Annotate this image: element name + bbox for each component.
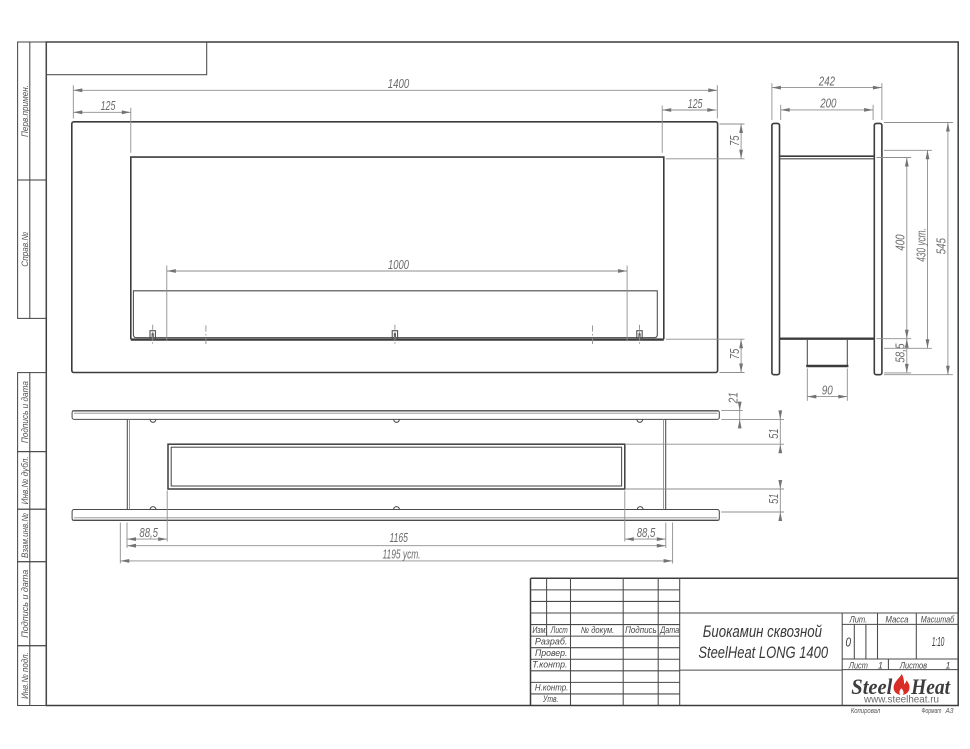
- svg-text:1:10: 1:10: [932, 635, 945, 649]
- svg-text:www.steelheat.ru: www.steelheat.ru: [863, 695, 939, 706]
- svg-text:242: 242: [818, 73, 835, 88]
- svg-text:SteelHeat LONG 1400: SteelHeat LONG 1400: [698, 644, 828, 662]
- svg-text:А3: А3: [945, 708, 954, 715]
- svg-text:Подпись и дата: Подпись и дата: [20, 381, 30, 443]
- svg-text:21: 21: [726, 392, 741, 404]
- svg-text:Изм.: Изм.: [532, 625, 547, 635]
- svg-text:430 уст.: 430 уст.: [913, 228, 928, 262]
- svg-text:Масштаб: Масштаб: [921, 615, 955, 625]
- svg-text:400: 400: [893, 234, 908, 251]
- svg-text:125: 125: [688, 96, 703, 111]
- svg-text:Взам.инв.№: Взам.инв.№: [20, 513, 30, 558]
- svg-text:75: 75: [727, 348, 742, 359]
- svg-text:Подпись и дата: Подпись и дата: [20, 570, 30, 638]
- svg-text:1400: 1400: [388, 76, 410, 91]
- svg-text:Дата: Дата: [659, 625, 679, 635]
- svg-text:Биокамин сквозной: Биокамин сквозной: [703, 623, 822, 641]
- svg-text:Инв.№ подл.: Инв.№ подл.: [20, 652, 30, 699]
- svg-text:Т.контр.: Т.контр.: [532, 659, 567, 669]
- svg-text:200: 200: [819, 96, 836, 111]
- svg-text:Лист: Лист: [848, 660, 868, 670]
- svg-text:Н.контр.: Н.контр.: [535, 683, 568, 693]
- svg-text:Лит.: Лит.: [849, 615, 868, 625]
- svg-text:125: 125: [101, 98, 116, 113]
- svg-text:88,5: 88,5: [139, 525, 158, 540]
- svg-text:51: 51: [766, 494, 781, 504]
- svg-text:58,5: 58,5: [893, 343, 908, 363]
- svg-text:Перв.примен.: Перв.примен.: [20, 85, 30, 137]
- svg-text:Лист: Лист: [550, 625, 568, 635]
- svg-text:Инв.№ дубл.: Инв.№ дубл.: [20, 456, 30, 504]
- svg-text:Утв.: Утв.: [542, 694, 558, 704]
- svg-text:0: 0: [845, 636, 851, 650]
- svg-text:Формат: Формат: [922, 708, 942, 715]
- svg-text:51: 51: [766, 428, 781, 438]
- svg-text:Разраб.: Разраб.: [535, 636, 568, 646]
- svg-text:88,5: 88,5: [637, 525, 656, 540]
- svg-text:Масса: Масса: [885, 615, 908, 625]
- svg-text:Листов: Листов: [899, 660, 927, 670]
- svg-text:Копировал: Копировал: [851, 708, 881, 715]
- svg-text:1: 1: [878, 660, 883, 670]
- svg-text:1000: 1000: [388, 257, 409, 272]
- svg-text:75: 75: [727, 135, 742, 146]
- svg-text:90: 90: [822, 382, 833, 397]
- svg-text:1: 1: [946, 660, 951, 670]
- svg-text:1195 уст.: 1195 уст.: [383, 547, 421, 562]
- svg-text:Справ.№: Справ.№: [20, 231, 30, 266]
- svg-text:545: 545: [934, 238, 949, 255]
- svg-text:Подпись: Подпись: [625, 625, 657, 635]
- svg-text:№ докум.: № докум.: [581, 625, 614, 635]
- svg-text:1165: 1165: [389, 530, 408, 545]
- svg-text:Провер.: Провер.: [535, 648, 568, 658]
